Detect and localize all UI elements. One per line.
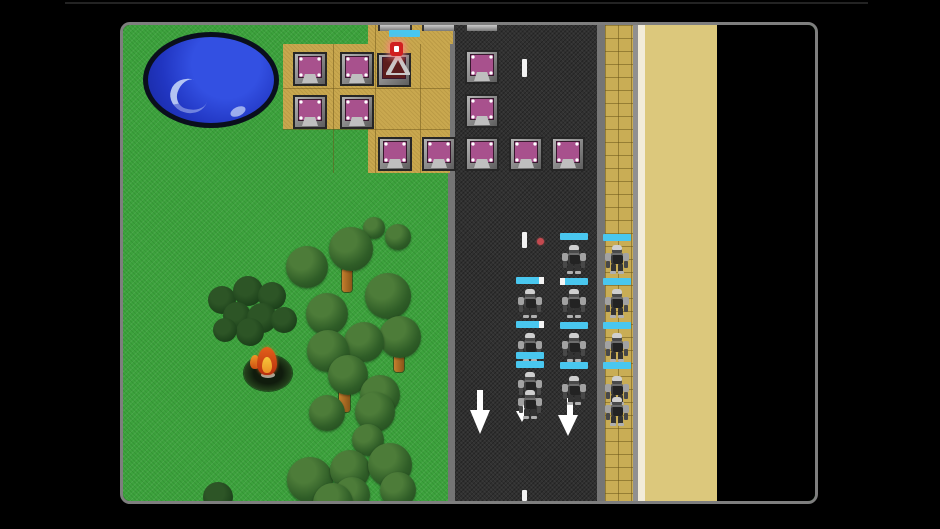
- tower-health-bar: [389, 30, 420, 37]
- robot-head: [569, 245, 579, 253]
- pond-highlight: [166, 74, 213, 118]
- tree-trunk: [342, 268, 352, 292]
- tower-partial: [422, 25, 456, 31]
- robot-arm: [563, 261, 567, 268]
- robot-arm: [563, 392, 567, 399]
- robot-arm: [581, 305, 585, 312]
- robot-head: [612, 289, 622, 297]
- robot-foot: [575, 271, 581, 274]
- robot-torso: [611, 384, 623, 395]
- robot-torso: [611, 253, 623, 264]
- sand-field: [645, 25, 717, 501]
- robot-shoulder: [623, 253, 629, 261]
- tower-core: [382, 57, 406, 79]
- robot-foot: [567, 402, 573, 405]
- tree-canopy: [329, 227, 373, 271]
- robot-foot: [610, 271, 616, 274]
- enemy-health-bar: [560, 322, 588, 329]
- robot-torso: [524, 297, 536, 308]
- robot-shoulder: [580, 253, 586, 261]
- plot-grid-line: [283, 88, 450, 89]
- robot-foot: [523, 315, 529, 318]
- robot-arm: [624, 261, 628, 268]
- path-arrow-icon: [477, 390, 483, 412]
- robot-head: [569, 376, 579, 384]
- robot-shoulder: [623, 405, 629, 413]
- tower-partial: [465, 25, 499, 31]
- enemy-health-bar: [560, 362, 588, 369]
- void-area: [717, 25, 815, 501]
- robot-shoulder: [623, 297, 629, 305]
- robot-foot: [618, 315, 624, 318]
- plot-grid-line: [420, 44, 421, 173]
- enemy-robot[interactable]: [561, 289, 587, 318]
- robot-foot: [575, 315, 581, 318]
- bush: [203, 482, 233, 504]
- tower[interactable]: [465, 94, 499, 128]
- robot-head: [525, 333, 535, 341]
- plot-grid-line: [283, 129, 450, 130]
- robot-foot: [531, 315, 537, 318]
- pond: [143, 32, 279, 128]
- collapsed-tower-icon: [386, 73, 410, 75]
- tree-canopy: [309, 395, 345, 431]
- robot-head: [612, 376, 622, 384]
- robot-shoulder: [623, 341, 629, 349]
- damage-indicator-icon: [390, 42, 403, 56]
- damage-indicator-core: [394, 46, 399, 52]
- robot-torso: [524, 341, 536, 352]
- enemy-health-bar: [516, 361, 544, 368]
- robot-shoulder: [536, 380, 542, 388]
- robot-head: [612, 333, 622, 341]
- robot-arm: [519, 406, 523, 413]
- robot-arm: [563, 305, 567, 312]
- robot-torso: [568, 253, 580, 264]
- robot-arm: [519, 305, 523, 312]
- enemy-health-bar: [560, 233, 588, 240]
- robot-arm: [606, 349, 610, 356]
- lane-dash: [522, 59, 527, 77]
- robot-torso: [611, 341, 623, 352]
- robot-foot: [567, 315, 573, 318]
- enemy-robot[interactable]: [561, 333, 587, 362]
- robot-foot: [618, 423, 624, 426]
- tree-canopy: [379, 316, 421, 358]
- robot-head: [569, 289, 579, 297]
- bush: [236, 318, 264, 346]
- enemy-health-bar: [603, 322, 631, 329]
- tower[interactable]: [293, 95, 327, 129]
- top-edge-line: [65, 2, 868, 4]
- robot-arm: [606, 305, 610, 312]
- enemy-health-bar: [560, 278, 588, 285]
- tree-canopy: [286, 246, 328, 288]
- tree-canopy: [365, 273, 411, 319]
- enemy-health-bar: [603, 278, 631, 285]
- pond-highlight: [229, 104, 247, 119]
- robot-arm: [581, 392, 585, 399]
- robot-torso: [611, 405, 623, 416]
- tower-damaged[interactable]: [377, 53, 411, 87]
- enemy-health-bar: [516, 352, 544, 359]
- tower[interactable]: [340, 52, 374, 86]
- enemy-robot[interactable]: [517, 390, 543, 419]
- game-viewport[interactable]: [120, 22, 818, 504]
- robot-foot: [531, 416, 537, 419]
- robot-torso: [611, 297, 623, 308]
- robot-shoulder: [536, 398, 542, 406]
- path-arrow-icon: [558, 415, 578, 436]
- robot-shoulder: [536, 341, 542, 349]
- robot-arm: [624, 413, 628, 420]
- tree-canopy: [306, 293, 348, 335]
- tree-canopy: [385, 224, 411, 250]
- tower[interactable]: [551, 137, 585, 171]
- bush: [213, 318, 237, 342]
- enemy-health-bar: [516, 277, 544, 284]
- robot-arm: [581, 349, 585, 356]
- enemy-robot[interactable]: [604, 245, 630, 274]
- enemy-robot[interactable]: [561, 376, 587, 405]
- health-bar-damage-tip: [539, 277, 544, 284]
- robot-arm: [537, 406, 541, 413]
- robot-arm: [581, 261, 585, 268]
- robot-shoulder: [623, 384, 629, 392]
- robot-arm: [606, 261, 610, 268]
- robot-head: [612, 397, 622, 405]
- robot-shoulder: [580, 297, 586, 305]
- tower[interactable]: [465, 137, 499, 171]
- tree-canopy: [380, 472, 416, 504]
- robot-shoulder: [536, 297, 542, 305]
- tower[interactable]: [340, 95, 374, 129]
- robot-torso: [524, 398, 536, 409]
- campfire-flame: [262, 357, 272, 373]
- robot-foot: [523, 416, 529, 419]
- robot-arm: [624, 305, 628, 312]
- robot-torso: [568, 297, 580, 308]
- robot-torso: [568, 341, 580, 352]
- tower[interactable]: [509, 137, 543, 171]
- enemy-health-bar: [516, 321, 544, 328]
- robot-foot: [567, 271, 573, 274]
- enemy-robot[interactable]: [561, 245, 587, 274]
- health-bar-damage-tip: [539, 321, 544, 328]
- projectile-icon: [537, 238, 544, 245]
- robot-torso: [568, 384, 580, 395]
- plot-grid-line: [333, 44, 334, 173]
- enemy-health-bar: [603, 234, 631, 241]
- robot-head: [612, 245, 622, 253]
- robot-foot: [610, 423, 616, 426]
- robot-shoulder: [580, 384, 586, 392]
- robot-head: [569, 333, 579, 341]
- collapsed-tower-icon: [391, 60, 405, 73]
- robot-foot: [618, 271, 624, 274]
- screen-background: [0, 0, 940, 529]
- robot-head: [525, 372, 535, 380]
- plot-grid-line: [375, 25, 376, 173]
- enemy-health-bar: [603, 362, 631, 369]
- robot-foot: [610, 315, 616, 318]
- enemy-robot[interactable]: [604, 397, 630, 426]
- enemy-robot[interactable]: [517, 289, 543, 318]
- robot-arm: [624, 349, 628, 356]
- lane-dash: [522, 232, 527, 248]
- white-strip: [638, 25, 645, 501]
- bush: [271, 307, 297, 333]
- robot-arm: [606, 413, 610, 420]
- path-arrow-icon: [470, 410, 490, 434]
- tower[interactable]: [378, 137, 412, 171]
- tower[interactable]: [293, 52, 327, 86]
- robot-head: [525, 390, 535, 398]
- robot-shoulder: [580, 341, 586, 349]
- robot-arm: [563, 349, 567, 356]
- health-bar-damage-tip: [560, 278, 565, 285]
- tower[interactable]: [422, 137, 456, 171]
- enemy-robot[interactable]: [604, 289, 630, 318]
- robot-arm: [537, 305, 541, 312]
- robot-head: [525, 289, 535, 297]
- robot-foot: [575, 402, 581, 405]
- tower[interactable]: [465, 50, 499, 84]
- enemy-robot[interactable]: [604, 333, 630, 362]
- lane-dash: [522, 490, 527, 501]
